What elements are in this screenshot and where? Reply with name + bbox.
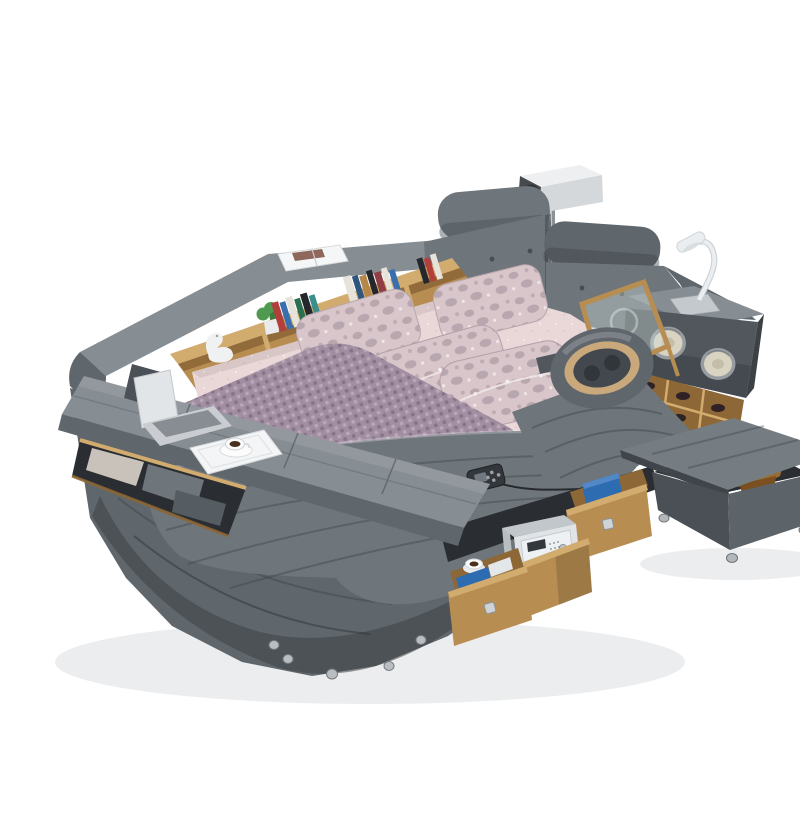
drawer-handle	[602, 518, 614, 530]
ball-foot	[659, 514, 669, 522]
ball-foot	[384, 662, 394, 671]
ottoman-shadow	[640, 548, 800, 580]
ball-foot	[416, 636, 426, 645]
speaker-right	[701, 348, 736, 380]
smart-bed-illustration	[40, 16, 800, 816]
ball-foot	[269, 641, 279, 650]
ball-foot	[327, 669, 338, 679]
teacup-coffee	[470, 562, 479, 567]
ball-foot	[727, 554, 738, 563]
coffee	[230, 441, 241, 447]
product-photo	[40, 16, 800, 816]
ball-foot	[283, 655, 293, 664]
drawer-handle	[484, 602, 496, 614]
